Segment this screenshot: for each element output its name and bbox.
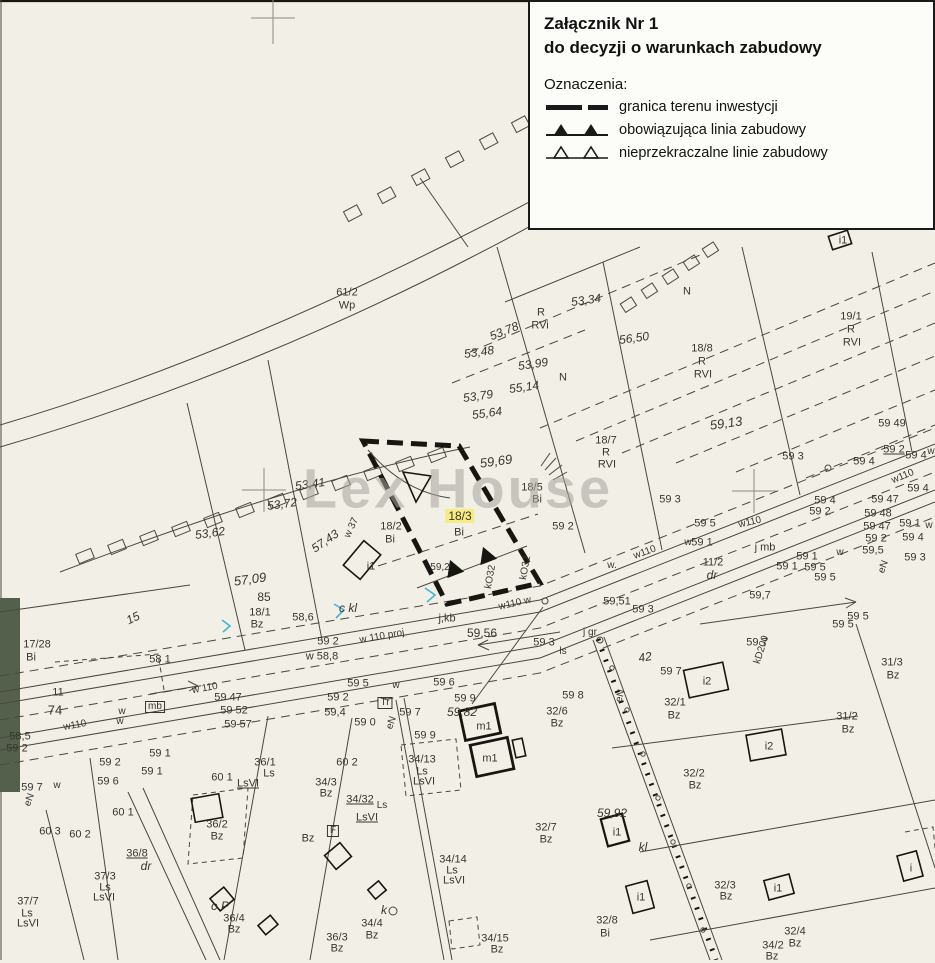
utility-branch — [593, 637, 722, 960]
survey-points — [389, 465, 831, 915]
legend-item-label: granica terenu inwestycji — [619, 99, 778, 115]
legend-item-label: nieprzekraczalne linie zabudowy — [619, 145, 828, 161]
boundary-line-symbol-icon — [544, 98, 610, 116]
vegetation-strip — [0, 598, 20, 792]
legend-title: Załącznik Nr 1 do decyzji o warunkach za… — [544, 12, 925, 60]
legend-item-obowiazujaca: obowiązująca linia zabudowy — [544, 121, 925, 139]
embankment-chain-mid — [620, 242, 718, 312]
dashed-outlines — [188, 739, 935, 949]
watermark: Lex House — [303, 456, 613, 521]
obligatory-building-line-symbol-icon — [544, 121, 610, 139]
legend-panel: Załącznik Nr 1 do decyzji o warunkach za… — [528, 0, 935, 230]
legend-item-nieprzekraczalna: nieprzekraczalne linie zabudowy — [544, 144, 925, 162]
building-line-obligatory — [417, 544, 527, 588]
nonexceedable-building-line-symbol-icon — [544, 144, 610, 162]
contour-lines — [452, 247, 935, 478]
cyan-marks — [222, 588, 435, 632]
legend-title-line2: do decyzji o warunkach zabudowy — [544, 36, 925, 60]
legend-symbols-heading: Oznaczenia: — [544, 76, 925, 93]
legend-title-line1: Załącznik Nr 1 — [544, 12, 925, 36]
legend-item-label: obowiązująca linia zabudowy — [619, 122, 806, 138]
parcel-lines-lower — [46, 607, 935, 960]
embankment-chain-upper — [343, 116, 529, 222]
legend-item-granica: granica terenu inwestycji — [544, 98, 925, 116]
buildings — [191, 230, 923, 934]
